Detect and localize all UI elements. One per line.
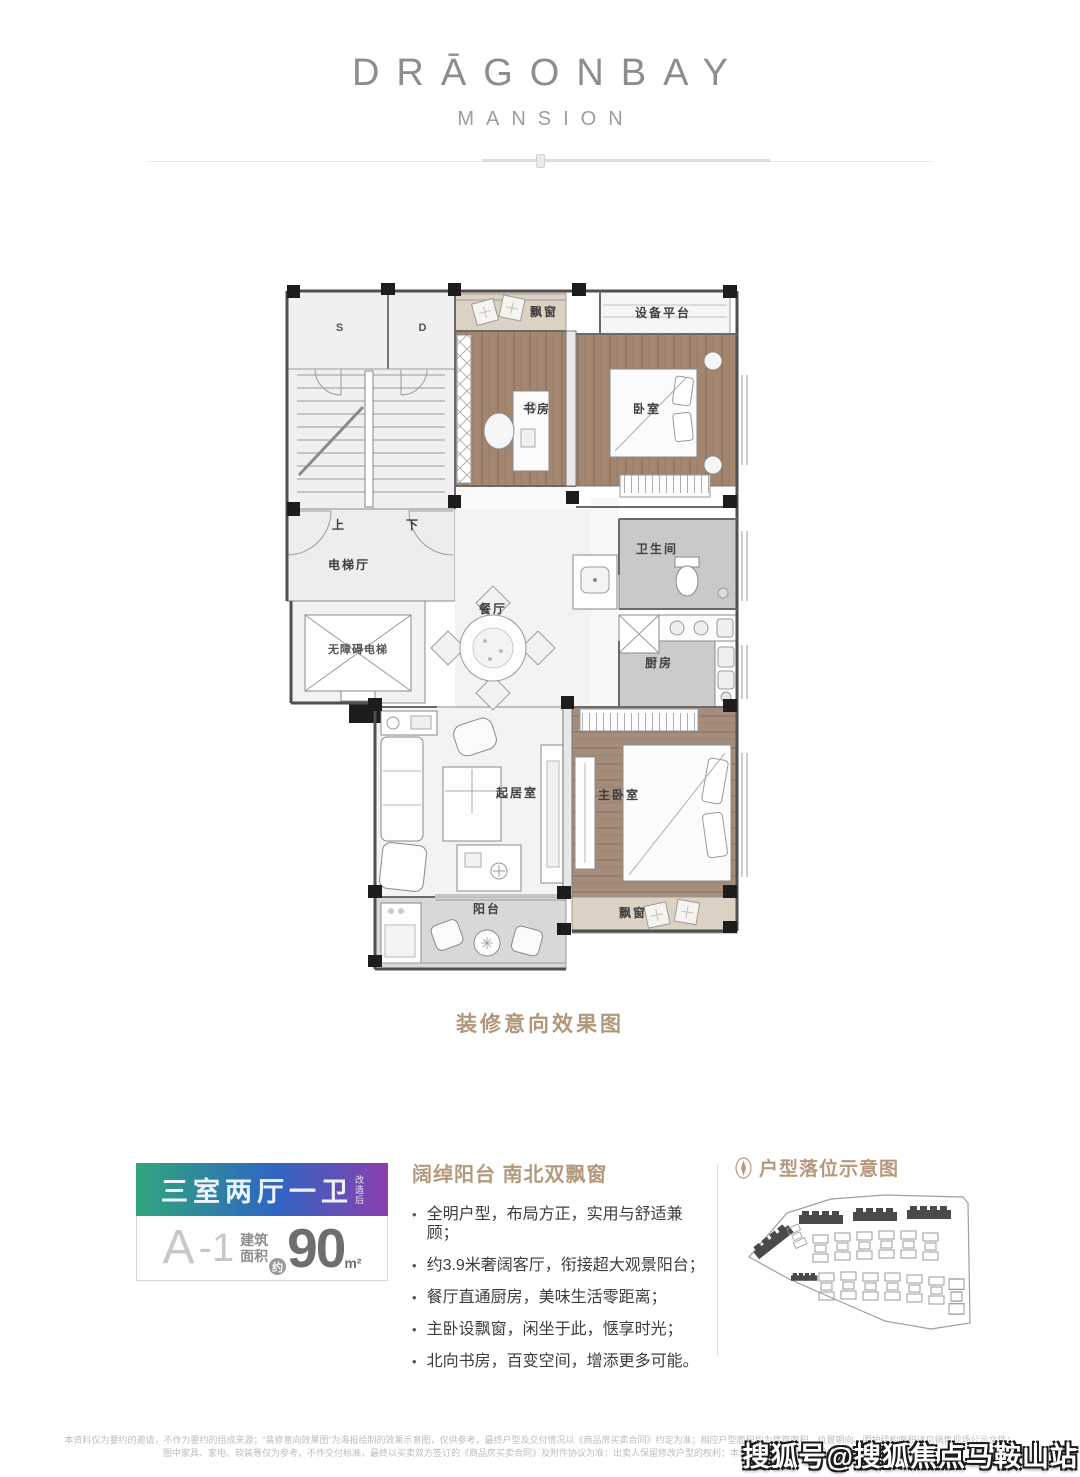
- unit-area-value: 90: [287, 1221, 344, 1276]
- room-label-bedroom: 卧室: [633, 401, 661, 416]
- room-label-kitchen: 厨房: [645, 655, 673, 670]
- room-label-balcony: 阳台: [473, 901, 501, 916]
- unit-area-label-line2: 面积: [240, 1248, 268, 1264]
- bullet-icon: •: [412, 1256, 417, 1275]
- section-divider: [717, 1164, 718, 1356]
- floorplan-caption: 装修意向效果图: [0, 1008, 1080, 1038]
- feature-text: 约3.9米奢阔客厅，衔接超大观景阳台；: [427, 1256, 705, 1275]
- room-label-study: 书房: [523, 401, 551, 416]
- sitemap-header: 户型落位示意图: [735, 1154, 975, 1181]
- feature-item: • 餐厅直通厨房，美味生活零距离；: [412, 1288, 714, 1307]
- feature-item: • 约3.9米奢阔客厅，衔接超大观景阳台；: [412, 1256, 714, 1275]
- room-label-bathroom: 卫生间: [636, 541, 678, 556]
- feature-text: 全明户型，布局方正，实用与舒适兼顾；: [427, 1205, 714, 1243]
- floor-plan-diagram: S D 飘窗 设备平台 书房 卧室 上 下 电梯厅 无障碍电梯 餐厅 卫生间 厨…: [285, 279, 755, 979]
- room-label-living: 起居室: [495, 785, 538, 800]
- unit-area-approx: 约: [269, 1258, 286, 1275]
- room-label-equipment: 设备平台: [635, 305, 691, 320]
- site-plan-diagram: [735, 1187, 975, 1347]
- bullet-icon: •: [412, 1352, 417, 1371]
- header-divider-accent: [482, 159, 770, 162]
- unit-model-suffix: -1: [199, 1228, 235, 1268]
- room-label-down: 下: [406, 518, 420, 532]
- header-divider-ornament: [536, 154, 545, 168]
- unit-model: A: [163, 1224, 195, 1272]
- features-section: 阔绰阳台 南北双飘窗 • 全明户型，布局方正，实用与舒适兼顾； • 约3.9米奢…: [412, 1158, 714, 1384]
- room-label-accessible-elevator: 无障碍电梯: [327, 642, 388, 656]
- brand-subtitle: MANSION: [0, 108, 1080, 131]
- room-label-bay-top: 飘窗: [530, 304, 558, 319]
- feature-text: 餐厅直通厨房，美味生活零距离；: [427, 1288, 667, 1307]
- feature-text: 主卧设飘窗，闲坐于此，惬享时光；: [427, 1320, 683, 1339]
- feature-text: 北向书房，百变空间，增添更多可能。: [427, 1352, 699, 1371]
- unit-layout-bar: 三室两厅一卫 改造后: [136, 1163, 388, 1216]
- features-title: 阔绰阳台 南北双飘窗: [412, 1158, 714, 1187]
- unit-layout-tag: 改造后: [354, 1175, 363, 1205]
- room-label-bay-bottom: 飘窗: [619, 905, 647, 920]
- sitemap-section: 户型落位示意图: [735, 1154, 975, 1352]
- bullet-icon: •: [412, 1205, 417, 1243]
- unit-area-unit: m²: [344, 1255, 361, 1271]
- room-label-stair-s: S: [336, 322, 344, 334]
- bullet-icon: •: [412, 1320, 417, 1339]
- room-label-master: 主卧室: [598, 787, 640, 802]
- compass-icon: [735, 1157, 752, 1179]
- feature-item: • 全明户型，布局方正，实用与舒适兼顾；: [412, 1205, 714, 1243]
- unit-area-label: 建筑 面积: [240, 1232, 268, 1264]
- sitemap-title: 户型落位示意图: [759, 1154, 899, 1181]
- room-label-dining: 餐厅: [479, 601, 507, 616]
- watermark: 搜狐号@搜狐焦点马鞍山站: [743, 1435, 1078, 1474]
- unit-badge: 三室两厅一卫 改造后 A -1 建筑 面积 约 90 m²: [136, 1163, 388, 1281]
- poster-page: DRĀGONBAY MANSION: [0, 0, 1080, 1477]
- room-label-up: 上: [332, 517, 346, 532]
- brand-logo: DRĀGONBAY: [0, 52, 1080, 95]
- unit-layout-label: 三室两厅一卫: [161, 1170, 353, 1209]
- unit-area-label-line1: 建筑: [240, 1232, 268, 1248]
- bullet-icon: •: [412, 1288, 417, 1307]
- unit-area-box: A -1 建筑 面积 约 90 m²: [136, 1216, 388, 1281]
- room-label-stair-d: D: [419, 322, 428, 334]
- room-label-elevator-hall: 电梯厅: [328, 557, 370, 572]
- feature-item: • 北向书房，百变空间，增添更多可能。: [412, 1352, 714, 1371]
- feature-item: • 主卧设飘窗，闲坐于此，惬享时光；: [412, 1320, 714, 1339]
